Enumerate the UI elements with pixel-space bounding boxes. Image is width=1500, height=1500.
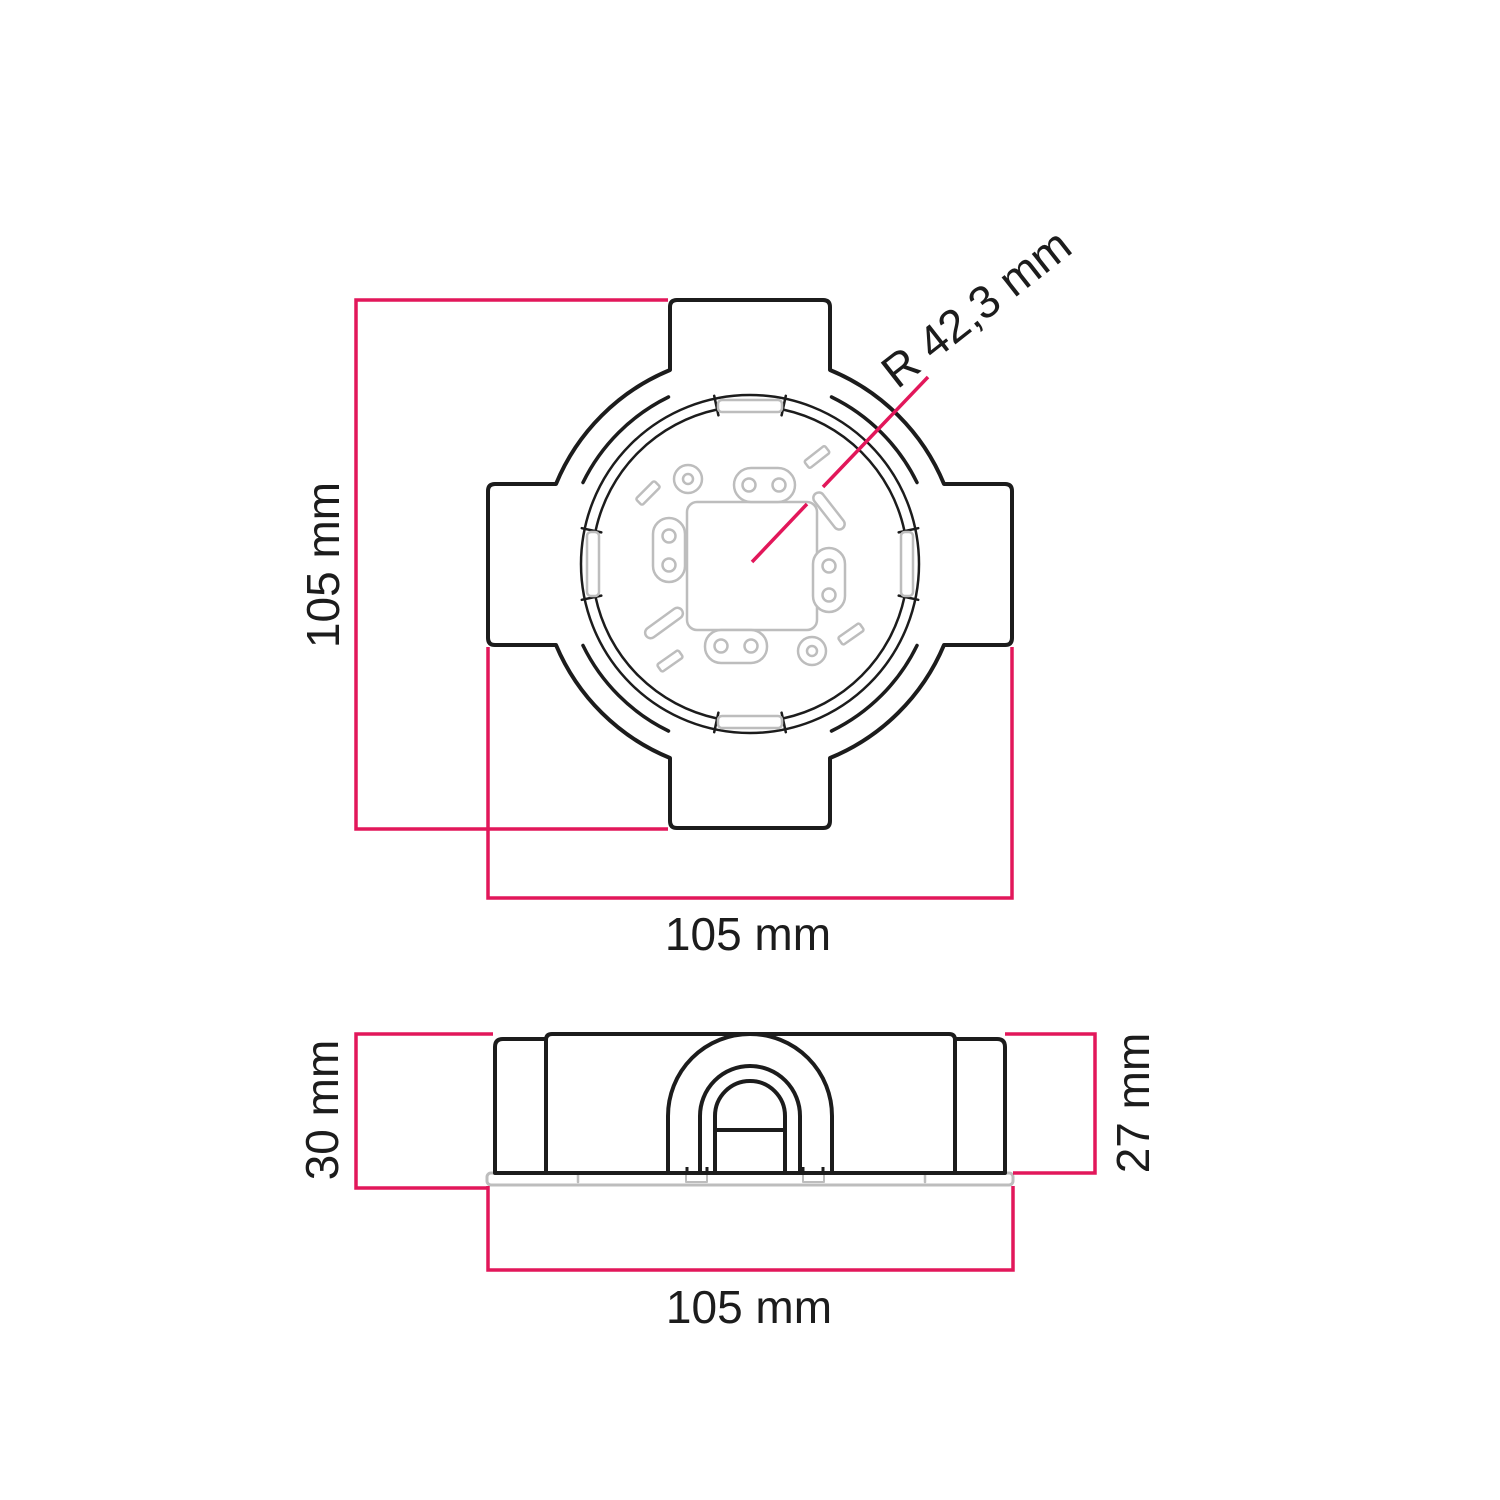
side-body: [495, 1034, 1005, 1173]
side-drum: [546, 1034, 955, 1173]
side-tab-left: [495, 1039, 546, 1173]
side-body-depth-label: 27 mm: [1107, 1033, 1159, 1174]
screw-pill-right: [813, 548, 845, 612]
dim-bracket-body-depth: [1005, 1034, 1095, 1173]
ring-latch-tab-top: [718, 400, 782, 412]
dim-bracket-total-depth: [356, 1034, 493, 1188]
side-width-label: 105 mm: [666, 1281, 832, 1333]
dim-bracket-width: [488, 647, 1012, 898]
top-view-width-label: 105 mm: [665, 908, 831, 960]
technical-drawing: 105 mm 105 mm R 42,3 mm: [0, 0, 1500, 1500]
drawing-canvas: 105 mm 105 mm R 42,3 mm: [0, 0, 1500, 1500]
side-view: [487, 1034, 1013, 1185]
ring-latch-tab-right: [901, 532, 913, 596]
ring-latch-tab-left: [587, 532, 599, 596]
top-view: [488, 300, 1012, 828]
center-square: [687, 502, 817, 630]
screw-hole-upper-left: [674, 465, 702, 493]
radius-label: R 42,3 mm: [871, 218, 1080, 397]
screw-pill-top: [734, 468, 795, 502]
dim-bracket-height: [356, 300, 668, 829]
screw-pill-bottom: [705, 630, 767, 663]
side-tab-right: [955, 1039, 1005, 1173]
screw-pill-left: [653, 518, 685, 582]
screw-hole-lower-right: [798, 637, 826, 665]
ring-latch-tab-bottom: [718, 716, 782, 728]
side-total-depth-label: 30 mm: [296, 1040, 348, 1181]
dim-bracket-side-width: [488, 1186, 1013, 1270]
top-view-height-label: 105 mm: [297, 482, 349, 648]
